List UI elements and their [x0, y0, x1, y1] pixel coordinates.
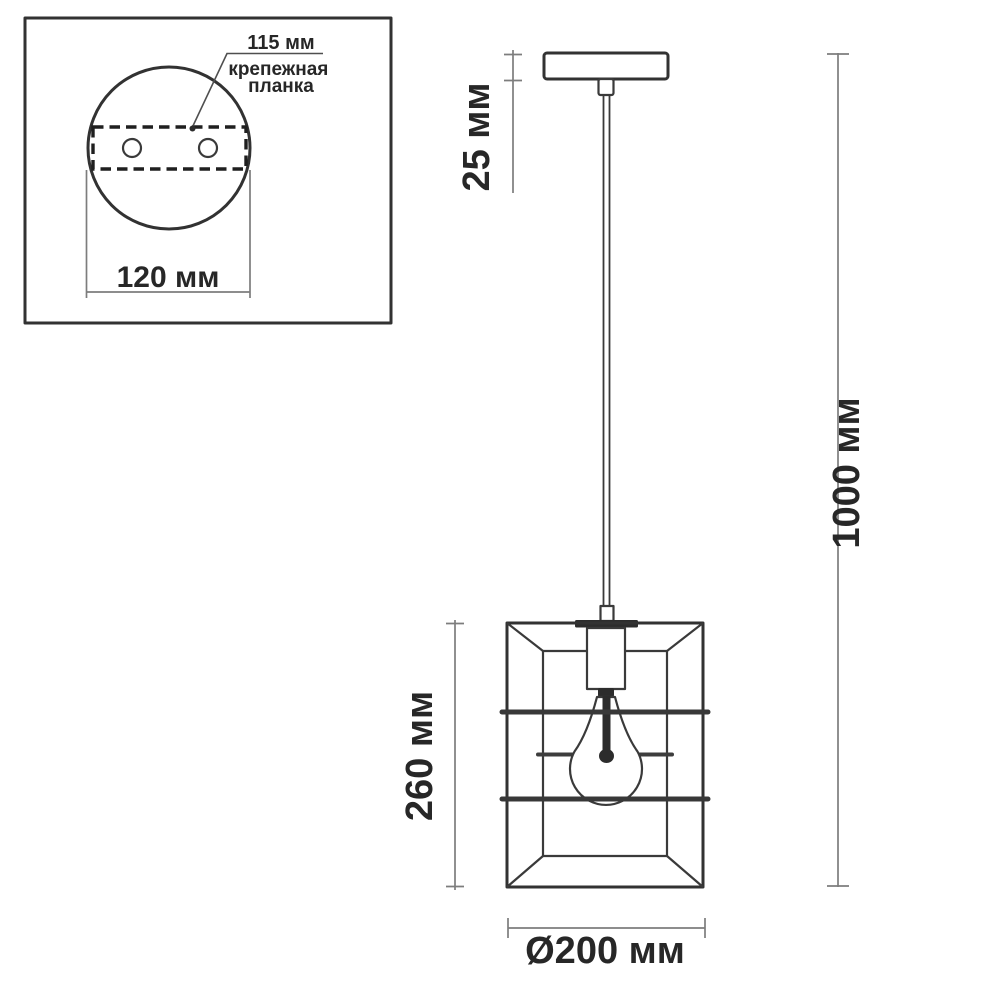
base-width-label: 120 мм: [117, 261, 220, 294]
mounting-plate-dashed-outline: [93, 127, 246, 169]
dimension-annotations: 25 мм 260 мм 1000 мм Ø200 мм: [399, 50, 868, 972]
ceiling-mount-inset: 115 мм крепежная планка 120 мм: [25, 18, 391, 323]
total-height-label: 1000 мм: [826, 397, 868, 548]
pendant-lamp-drawing: [502, 53, 708, 887]
shade-height-label: 260 мм: [399, 691, 441, 821]
cage-edge-bottom-right: [667, 856, 703, 887]
shade-cord-grip: [601, 606, 614, 621]
cage-edge-top-left: [507, 623, 543, 651]
mounting-hole-right: [199, 139, 217, 157]
mounting-plate-label: крепежная планка: [228, 59, 333, 97]
leader-dot: [190, 126, 196, 132]
ceiling-cup-outline: [88, 67, 250, 229]
cage-edge-top-right: [667, 623, 703, 651]
canopy-height-label: 25 мм: [456, 82, 498, 191]
ceiling-canopy: [544, 53, 668, 79]
drawing-canvas: 115 мм крепежная планка 120 мм: [0, 0, 1000, 1000]
lamp-socket: [587, 628, 625, 689]
technical-drawing-page: 115 мм крепежная планка 120 мм: [0, 0, 1000, 1000]
socket-cap: [598, 688, 614, 697]
cage-edge-bottom-left: [507, 856, 543, 887]
shade-diameter-label: Ø200 мм: [525, 930, 685, 972]
bulb-filament-stem: [603, 696, 611, 753]
hole-spacing-label: 115 мм: [247, 32, 314, 54]
mounting-hole-left: [123, 139, 141, 157]
canopy-cord-grip: [599, 79, 614, 95]
bulb-filament-knob: [599, 749, 614, 763]
